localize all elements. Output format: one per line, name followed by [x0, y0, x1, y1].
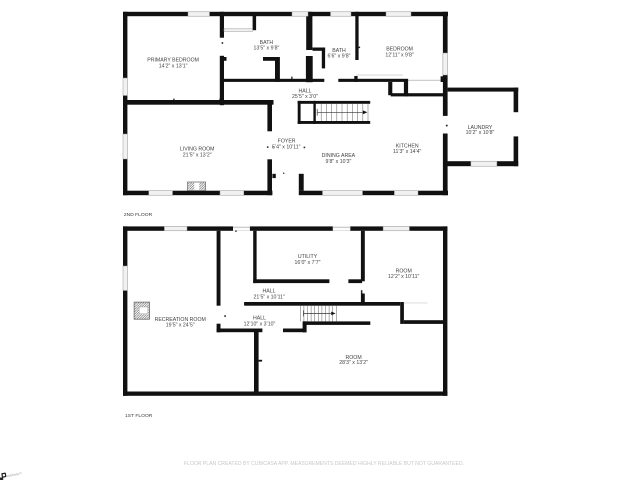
svg-text:FLOOR PLAN CREATED BY CUBICASA: FLOOR PLAN CREATED BY CUBICASA APP. MEAS…: [184, 461, 464, 467]
svg-text:10’2" x 10’8": 10’2" x 10’8": [466, 130, 495, 136]
svg-text:11’3" x 14’4": 11’3" x 14’4": [393, 149, 422, 155]
svg-text:19’5" x 24’5": 19’5" x 24’5": [166, 322, 195, 328]
svg-text:13’5" x 9’8": 13’5" x 9’8": [253, 45, 279, 51]
svg-text:6’6" x 9’8": 6’6" x 9’8": [327, 54, 350, 60]
svg-text:21’5" x 13’2": 21’5" x 13’2": [183, 152, 212, 158]
svg-text:12’10" x 3’10": 12’10" x 3’10": [244, 321, 276, 327]
svg-text:2ND FLOOR: 2ND FLOOR: [124, 212, 153, 218]
svg-text:BEDROOM: BEDROOM: [386, 46, 413, 52]
svg-text:28’3" x 13’2": 28’3" x 13’2": [339, 360, 368, 366]
svg-text:12’2" x 10’11": 12’2" x 10’11": [388, 274, 419, 280]
svg-text:5’4" x 10’11": 5’4" x 10’11": [272, 144, 301, 150]
svg-text:DINING AREA: DINING AREA: [322, 153, 356, 159]
svg-text:25’5" x 3’0": 25’5" x 3’0": [292, 94, 318, 100]
svg-text:1ST FLOOR: 1ST FLOOR: [125, 413, 153, 419]
svg-text:9’8" x 10’3": 9’8" x 10’3": [325, 159, 351, 165]
svg-text:21’5" x 10’11": 21’5" x 10’11": [254, 294, 285, 300]
svg-text:16’0" x 7’7": 16’0" x 7’7": [295, 260, 321, 266]
svg-text:12’11" x 9’8": 12’11" x 9’8": [385, 53, 414, 59]
svg-text:14’2" x 13’1": 14’2" x 13’1": [159, 63, 188, 69]
